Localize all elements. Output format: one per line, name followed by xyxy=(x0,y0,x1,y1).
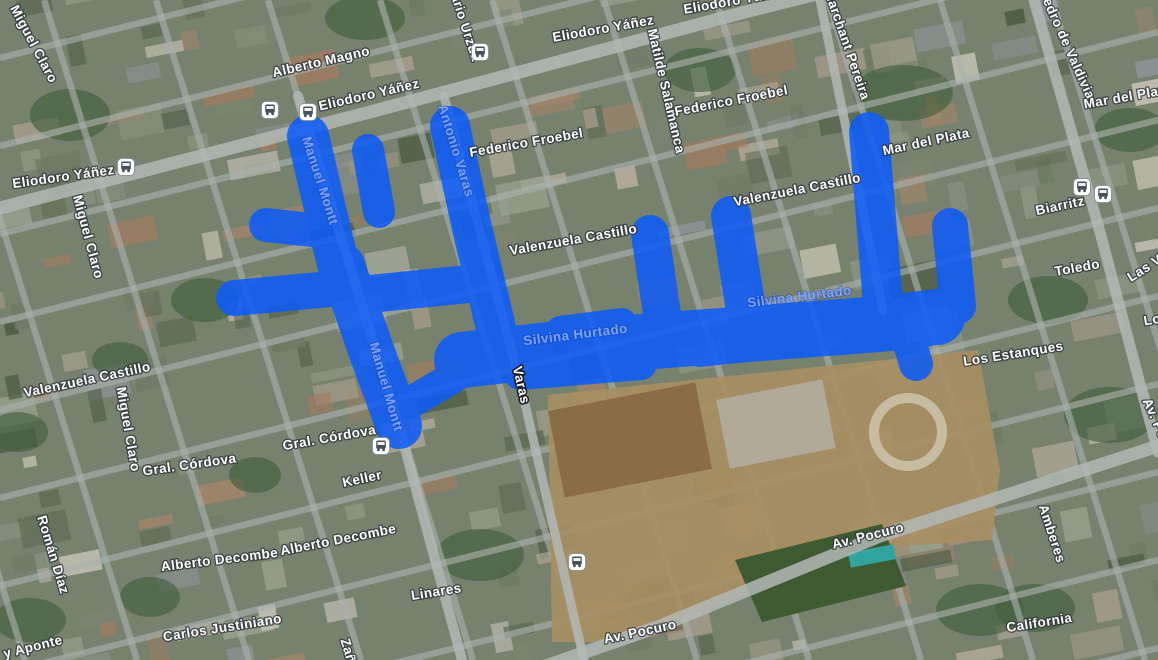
bus-stop-icon[interactable] xyxy=(569,554,586,571)
map-viewport[interactable]: Miguel ClaroAlberto MagnoEliodoro YáñezE… xyxy=(0,0,1158,660)
bus-stop-icon[interactable] xyxy=(118,159,135,176)
bus-stop-icon[interactable] xyxy=(262,102,279,119)
bus-stop-icon[interactable] xyxy=(1074,179,1091,196)
bus-stop-icon[interactable] xyxy=(1095,186,1112,203)
bus-stop-icon[interactable] xyxy=(373,438,390,455)
bus-stop-icon[interactable] xyxy=(472,44,489,61)
bus-stop-icon[interactable] xyxy=(300,104,317,121)
street-label: Lo xyxy=(1142,311,1158,329)
satellite-map[interactable]: Miguel ClaroAlberto MagnoEliodoro YáñezE… xyxy=(0,0,1158,660)
